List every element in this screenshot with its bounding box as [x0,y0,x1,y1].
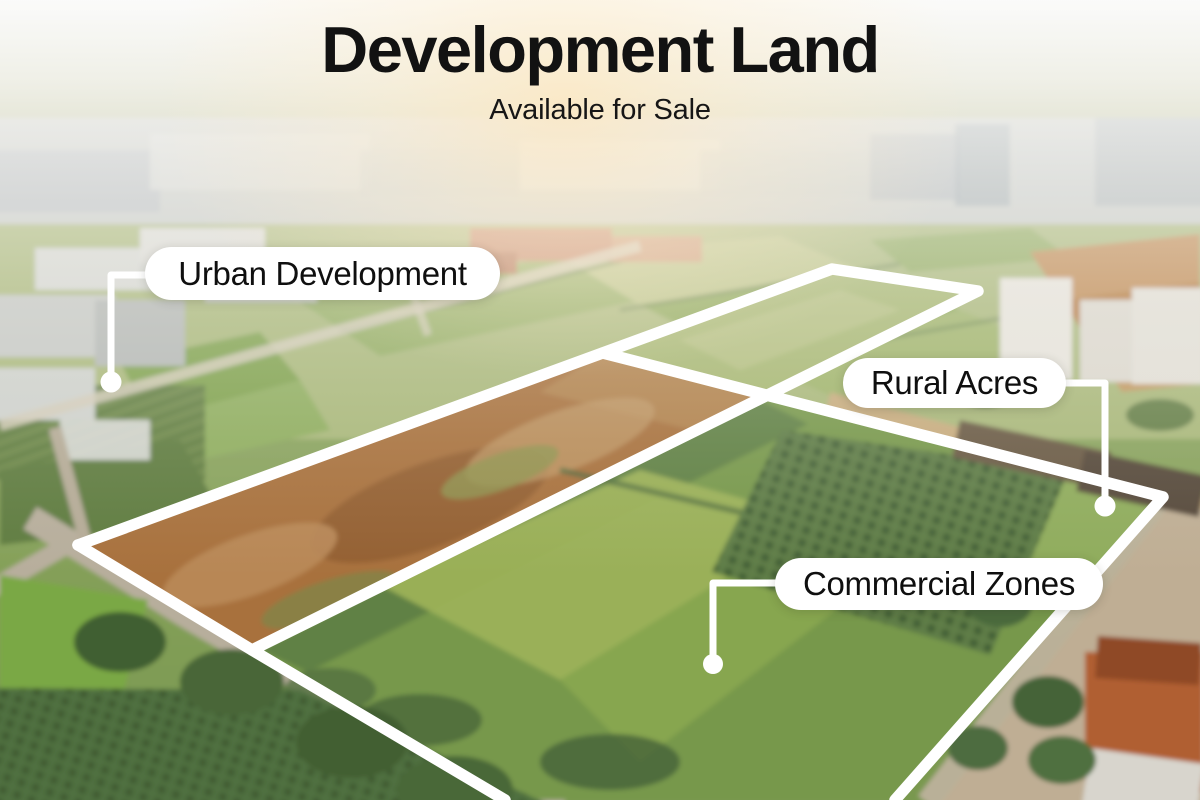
callout-commercial-zones: Commercial Zones [775,558,1103,610]
callout-rural-acres: Rural Acres [843,358,1066,408]
callout-urban-development: Urban Development [145,247,500,300]
rural-marker-dot [1095,496,1116,517]
callout-commercial-label: Commercial Zones [803,565,1075,603]
callout-rural-label: Rural Acres [871,364,1038,402]
callout-urban-label: Urban Development [178,255,466,293]
land-sale-poster: Development Land Available for Sale Urba… [0,0,1200,800]
commercial-marker-dot [703,654,723,674]
urban-marker-dot [101,372,122,393]
